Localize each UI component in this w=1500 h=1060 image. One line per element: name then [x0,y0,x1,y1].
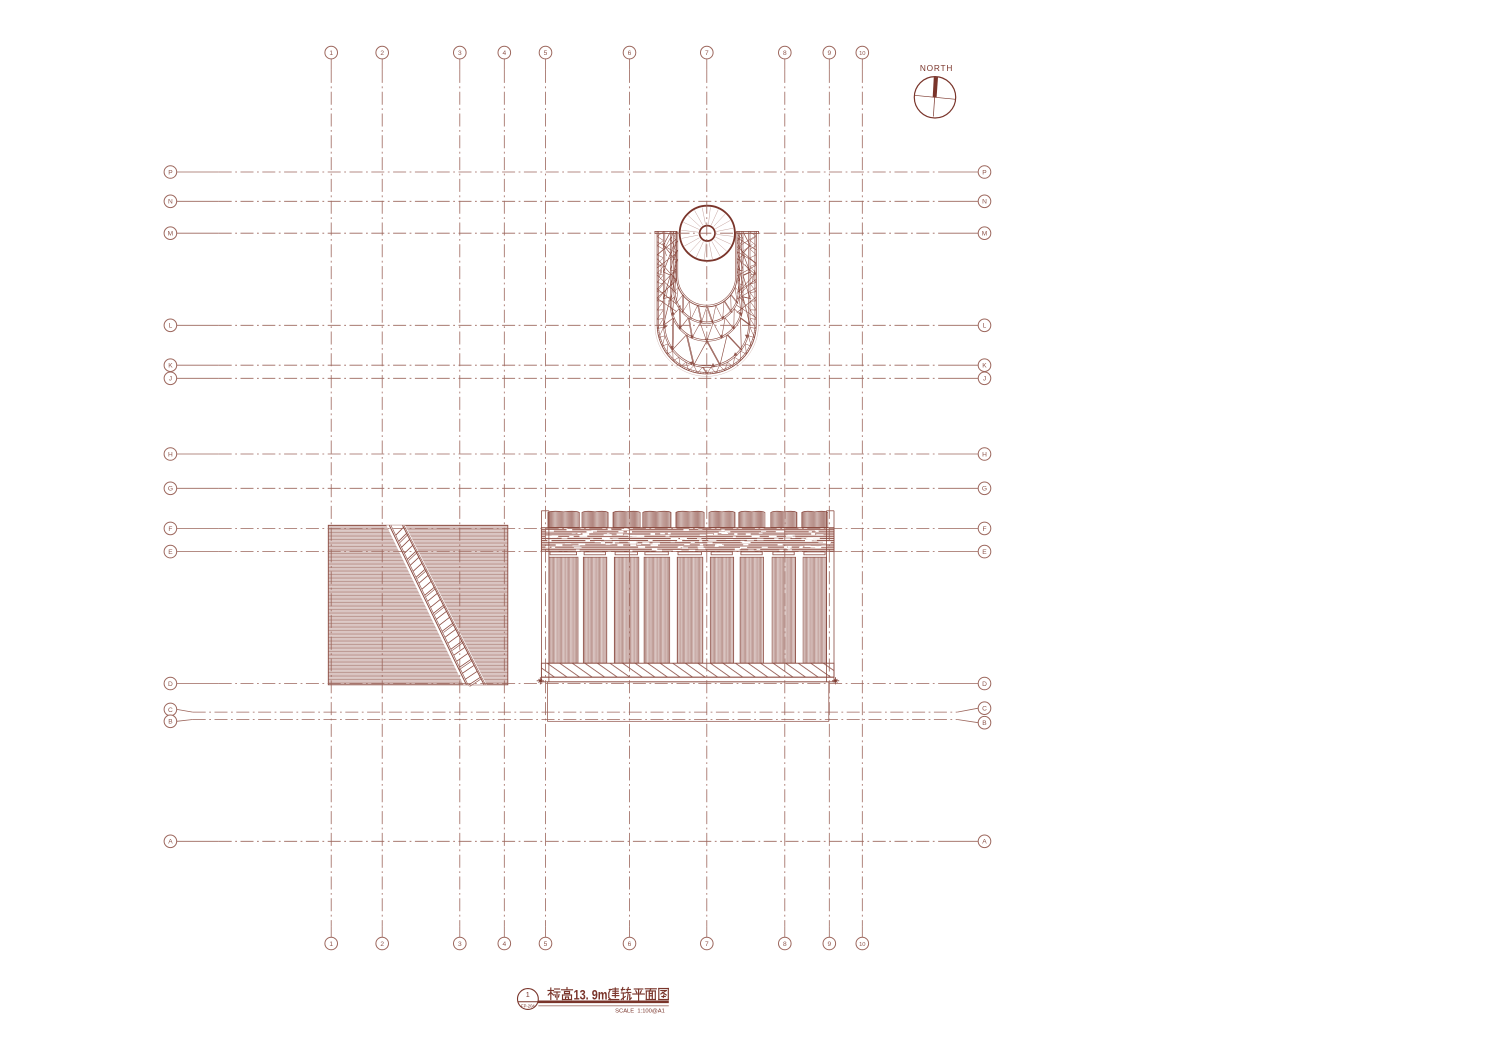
svg-text:H: H [982,451,987,458]
svg-text:2: 2 [380,941,384,948]
svg-text:C: C [982,706,987,713]
svg-text:P: P [982,169,987,176]
svg-text:7: 7 [705,941,709,948]
svg-text:13. 9m: 13. 9m [574,987,608,1002]
svg-text:10: 10 [859,51,865,57]
svg-text:D: D [168,681,173,688]
svg-text:6: 6 [628,941,632,948]
svg-text:8: 8 [783,50,787,57]
svg-text:2: 2 [380,50,384,57]
svg-text:B: B [168,719,173,726]
svg-text:G: G [982,486,987,493]
svg-text:4: 4 [502,941,506,948]
svg-text:L: L [169,323,173,330]
svg-text:F: F [982,526,986,533]
svg-text:L: L [983,323,987,330]
svg-text:A: A [982,839,987,846]
svg-text:A: A [168,839,173,846]
svg-text:M: M [982,231,988,238]
svg-text:N: N [982,199,987,206]
svg-text:10: 10 [859,942,865,948]
svg-text:SCALE 1:100@A1: SCALE 1:100@A1 [615,1008,665,1014]
svg-text:E: E [982,549,987,556]
svg-text:9: 9 [827,50,831,57]
svg-text:6: 6 [628,50,632,57]
svg-text:3: 3 [458,941,462,948]
svg-text:7: 7 [705,50,709,57]
svg-text:9: 9 [827,941,831,948]
svg-text:K: K [168,363,173,370]
svg-text:5: 5 [544,941,548,948]
svg-text:D: D [982,681,987,688]
svg-text:J: J [169,376,172,383]
svg-text:G: G [168,486,173,493]
svg-text:4: 4 [502,50,506,57]
svg-text:3: 3 [458,50,462,57]
svg-text:B: B [982,720,987,727]
svg-text:H: H [168,451,173,458]
svg-text:NORTH: NORTH [920,63,953,73]
svg-text:1: 1 [526,990,530,999]
svg-text:F: F [168,526,172,533]
svg-text:M: M [168,231,174,238]
svg-text:E: E [168,549,173,556]
svg-text:C: C [168,707,173,714]
svg-text:K: K [982,363,987,370]
svg-text:FP-204: FP-204 [521,1004,535,1009]
svg-text:1: 1 [329,50,333,57]
svg-text:1: 1 [329,941,333,948]
svg-text:J: J [983,376,986,383]
svg-text:8: 8 [783,941,787,948]
svg-text:N: N [168,199,173,206]
svg-text:P: P [168,169,173,176]
svg-text:5: 5 [544,50,548,57]
